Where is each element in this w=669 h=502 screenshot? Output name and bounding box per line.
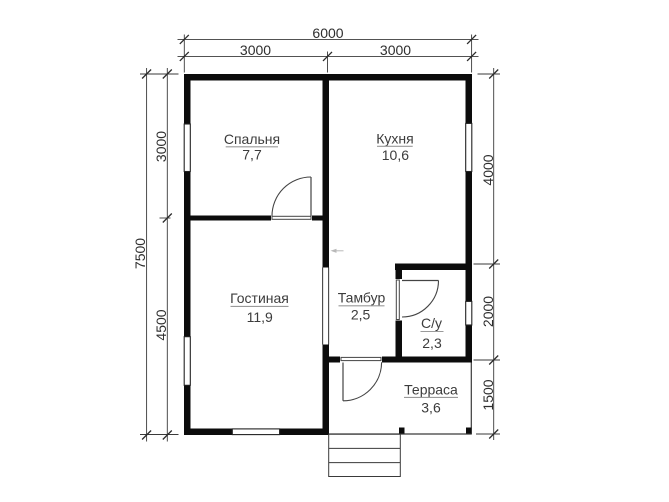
svg-text:4000: 4000 bbox=[480, 154, 496, 185]
svg-text:Терраса: Терраса bbox=[404, 382, 458, 398]
svg-text:7,7: 7,7 bbox=[242, 147, 262, 163]
svg-text:2,5: 2,5 bbox=[351, 307, 371, 323]
svg-text:7500: 7500 bbox=[132, 238, 148, 269]
svg-text:3000: 3000 bbox=[153, 131, 169, 162]
svg-text:3,6: 3,6 bbox=[421, 400, 441, 416]
svg-text:С/у: С/у bbox=[421, 315, 442, 331]
svg-text:Гостиная: Гостиная bbox=[230, 290, 289, 306]
svg-text:2000: 2000 bbox=[480, 296, 496, 327]
svg-text:6000: 6000 bbox=[312, 25, 343, 41]
svg-text:2,3: 2,3 bbox=[422, 335, 442, 351]
svg-text:Спальня: Спальня bbox=[224, 131, 280, 147]
svg-text:10,6: 10,6 bbox=[382, 147, 409, 163]
svg-text:3000: 3000 bbox=[240, 42, 271, 58]
svg-text:4500: 4500 bbox=[153, 309, 169, 340]
svg-text:Кухня: Кухня bbox=[376, 131, 413, 147]
svg-text:3000: 3000 bbox=[380, 42, 411, 58]
svg-text:Тамбур: Тамбур bbox=[338, 290, 386, 306]
svg-text:11,9: 11,9 bbox=[247, 309, 273, 325]
svg-text:1500: 1500 bbox=[480, 379, 496, 410]
